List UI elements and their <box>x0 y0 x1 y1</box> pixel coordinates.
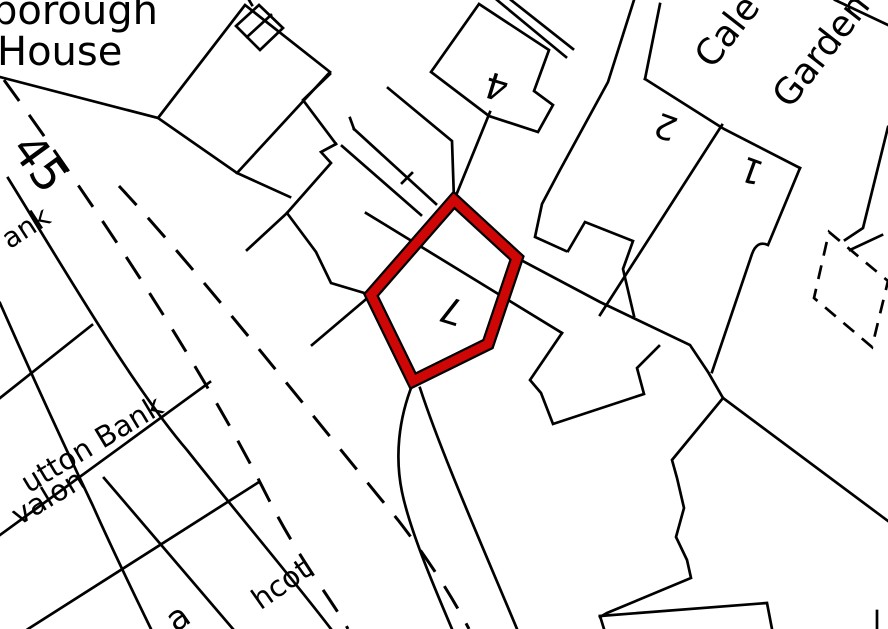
strip-zigzag <box>287 144 371 295</box>
boundary-b1-link <box>237 173 290 197</box>
strip-branch <box>247 213 287 250</box>
plot-divider-2-1 <box>600 125 722 315</box>
map-canvas: borough House 45 ank utton Bank valon hc… <box>0 0 888 629</box>
passage-line-1 <box>497 0 566 57</box>
boundary-plot4-west <box>388 88 454 200</box>
driveway-east <box>420 388 517 629</box>
street-edge-west <box>535 0 634 251</box>
annex-tick <box>249 0 252 5</box>
building-bottom <box>600 603 772 629</box>
passage-line-2 <box>511 0 573 49</box>
boundary-plot7-sw <box>312 295 371 345</box>
plot1-east-boundary <box>712 168 800 372</box>
building-stepped-south <box>530 333 659 424</box>
boundary-se-main <box>517 258 723 398</box>
dashed-outbuilding-outline <box>814 232 888 347</box>
dashed-outbuilding <box>814 232 888 347</box>
building-annex <box>236 5 283 50</box>
boundary-peak-steps <box>600 398 723 617</box>
driveway-west <box>398 383 452 629</box>
building-borough-house <box>158 5 330 173</box>
boundary-peak-east <box>723 398 888 521</box>
boundary-nw <box>0 77 158 118</box>
boundary-b1-east <box>303 74 336 144</box>
annex-divider <box>247 15 271 37</box>
label-borough: borough <box>0 0 158 31</box>
label-house: House <box>0 32 122 72</box>
boundary-plot4 <box>455 112 490 198</box>
footpath-tick <box>350 118 354 129</box>
boundary-ne-plot <box>845 127 888 240</box>
street-edge-east <box>645 4 660 79</box>
boundary-ne-tick <box>850 235 882 250</box>
